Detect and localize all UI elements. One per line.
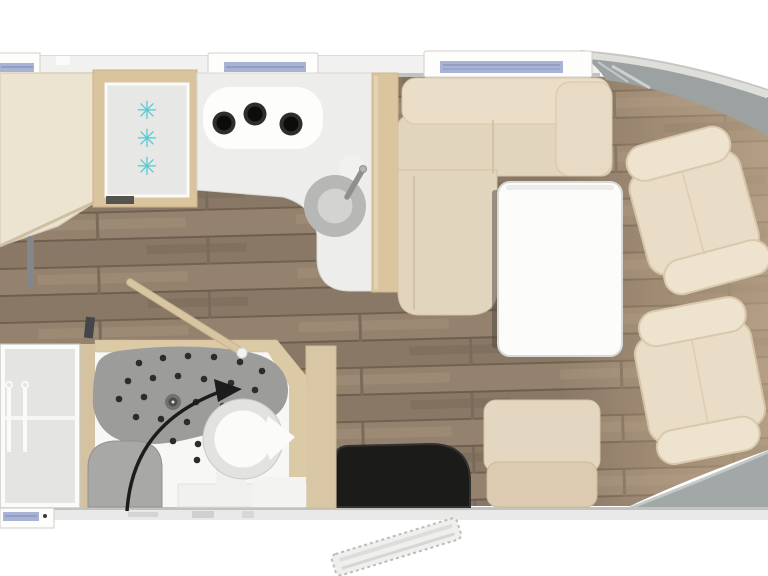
snowflake-icon: ✳ [137, 96, 158, 125]
snowflake-icon: ✳ [137, 152, 158, 181]
cabinet-highlight [374, 76, 378, 289]
wardrobe-body [0, 344, 80, 508]
door-frame-mark [242, 511, 254, 518]
bottom-wall-band [0, 510, 768, 520]
bathroom-ledge-corner [252, 477, 306, 507]
motorhome-floorplan: ✳ ✳ ✳ [0, 0, 768, 576]
faucet-handle [360, 166, 367, 173]
side-bench-seat [484, 400, 600, 507]
snowflake-icon: ✳ [137, 124, 158, 153]
swivel-wall-pivot [237, 348, 247, 358]
fridge-vent [106, 196, 134, 204]
wall-notch [56, 56, 70, 65]
bench-cushion [484, 400, 600, 472]
table-top [498, 182, 622, 356]
dinette-table [492, 182, 622, 356]
window-latch [43, 514, 47, 518]
window-rear-top [0, 53, 40, 75]
shower-seat [88, 441, 162, 507]
fridge-freezer: ✳ ✳ ✳ [93, 70, 197, 207]
shower-drain-dot [172, 401, 175, 404]
window-bathroom-bottom [0, 506, 54, 528]
door-frame-mark [192, 511, 214, 518]
bathroom [77, 340, 307, 511]
table-edge-highlight [506, 185, 614, 190]
bench-backrest [487, 462, 597, 507]
entry-mat [336, 444, 470, 507]
floorplan-canvas: ✳ ✳ ✳ [0, 0, 768, 576]
wardrobe [0, 344, 80, 508]
bottom-wall [0, 507, 768, 520]
wardrobe-rail [4, 416, 76, 420]
window-glass [440, 61, 563, 73]
bathroom-outer-wall [306, 346, 336, 508]
dinette-chaise [398, 170, 497, 315]
dinette-armrest [556, 82, 612, 176]
bed-support-pole [27, 236, 34, 287]
window-dinette [424, 51, 592, 77]
door-frame-mark [128, 512, 158, 517]
